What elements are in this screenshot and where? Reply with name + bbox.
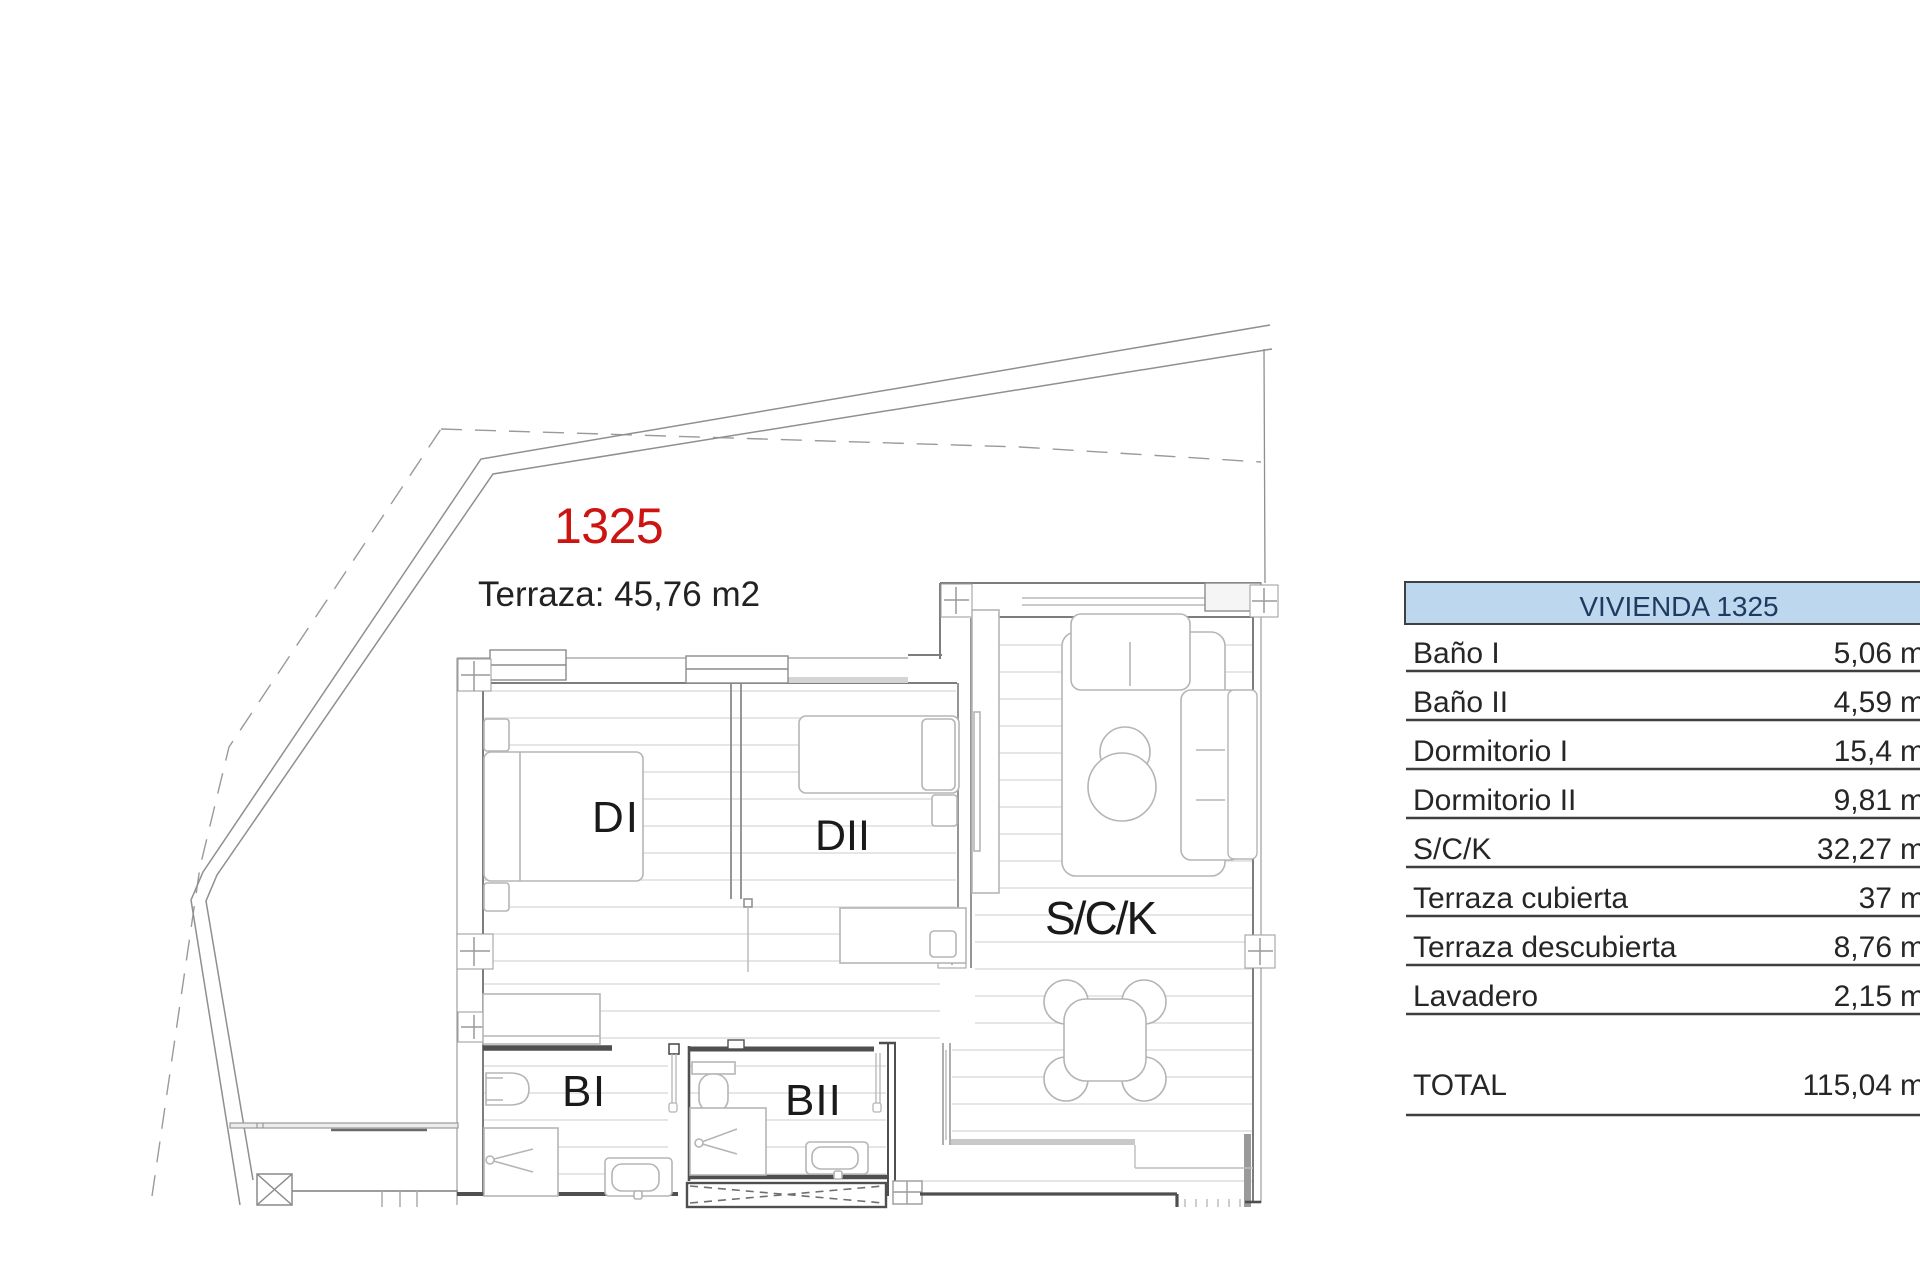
svg-text:Lavadero: Lavadero [1413,980,1538,1013]
svg-text:Baño II: Baño II [1413,686,1508,719]
svg-text:37: 37 [1859,882,1892,915]
svg-text:m2: m2 [1900,735,1920,768]
svg-text:Terraza cubierta: Terraza cubierta [1413,882,1628,915]
svg-text:115,04: 115,04 [1802,1069,1892,1102]
svg-text:Dormitorio II: Dormitorio II [1413,784,1576,817]
svg-text:DI: DI [592,793,640,842]
svg-text:m2: m2 [1900,686,1920,719]
svg-text:m2: m2 [1900,637,1920,670]
svg-text:m2: m2 [1900,833,1920,866]
svg-text:BI: BI [562,1067,607,1116]
svg-text:m2: m2 [1900,882,1920,915]
svg-text:15,4: 15,4 [1834,735,1892,768]
svg-text:TOTAL: TOTAL [1413,1069,1507,1102]
svg-text:5,06: 5,06 [1834,637,1892,670]
svg-text:S/C/K: S/C/K [1045,892,1157,944]
svg-text:8,76: 8,76 [1834,931,1892,964]
svg-text:Terraza: 45,76 m2: Terraza: 45,76 m2 [478,575,760,614]
svg-text:Dormitorio I: Dormitorio I [1413,735,1568,768]
svg-text:DII: DII [815,812,870,860]
svg-text:VIVIENDA 1325: VIVIENDA 1325 [1579,591,1778,622]
svg-text:2,15: 2,15 [1834,980,1892,1013]
svg-text:32,27: 32,27 [1817,833,1892,866]
svg-text:9,81: 9,81 [1834,784,1892,817]
svg-text:BII: BII [785,1076,842,1125]
svg-text:m2: m2 [1900,980,1920,1013]
svg-text:Terraza descubierta: Terraza descubierta [1413,931,1677,964]
svg-text:1325: 1325 [554,498,663,554]
svg-text:m2: m2 [1900,931,1920,964]
svg-text:Baño I: Baño I [1413,637,1500,670]
svg-text:m2: m2 [1900,1069,1920,1102]
svg-text:S/C/K: S/C/K [1413,833,1491,866]
svg-text:m2: m2 [1900,784,1920,817]
svg-text:4,59: 4,59 [1834,686,1892,719]
